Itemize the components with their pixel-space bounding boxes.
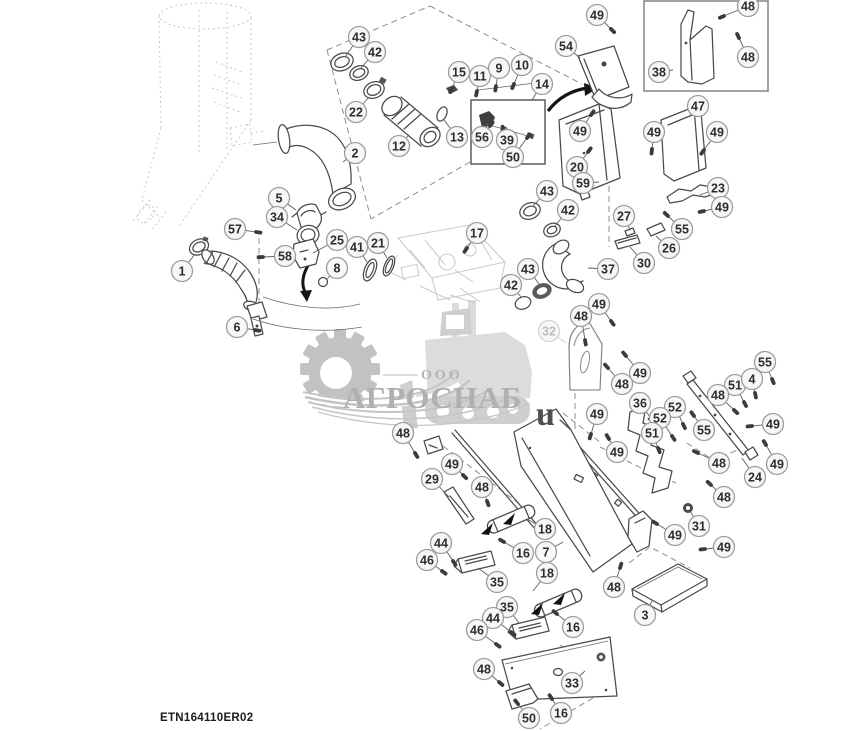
callout-13[interactable]: 13 — [444, 120, 468, 148]
callout-number: 39 — [500, 133, 514, 147]
callout-number: 48 — [712, 456, 726, 470]
bracket-above-tray — [628, 511, 652, 552]
callout-24[interactable]: 24 — [742, 458, 766, 488]
callout-number: 6 — [234, 320, 241, 334]
fastener-icon — [496, 644, 500, 647]
callout-32[interactable]: 32 — [539, 321, 567, 344]
callout-49[interactable]: 49 — [701, 537, 735, 558]
callout-number: 49 — [668, 528, 682, 542]
fastener-icon — [511, 632, 515, 635]
callout-number: 31 — [692, 519, 706, 533]
callout-number: 2 — [352, 146, 359, 160]
callout-48[interactable]: 48 — [708, 482, 735, 508]
callout-48[interactable]: 48 — [720, 0, 759, 18]
fastener-icon — [607, 435, 609, 439]
callout-1[interactable]: 1 — [172, 254, 196, 282]
callout-number: 21 — [371, 236, 385, 250]
callout-14[interactable]: 14 — [532, 74, 553, 101]
callout-number: 27 — [617, 209, 631, 223]
callout-35[interactable]: 35 — [478, 568, 508, 593]
fastener-icon — [585, 340, 586, 344]
callout-number: 10 — [515, 58, 529, 72]
part-43-clamp-ring-2 — [517, 200, 542, 223]
callout-55[interactable]: 55 — [691, 412, 714, 440]
fastener-icon — [550, 695, 552, 699]
fastener-icon — [744, 402, 746, 406]
watermark-company-name: АГРОСНАБ — [343, 380, 522, 415]
callout-number: 49 — [590, 8, 604, 22]
fastener-icon — [611, 29, 614, 32]
part-54-deflector — [578, 46, 632, 108]
fastener-icon — [487, 501, 489, 505]
callout-number: 48 — [615, 377, 629, 391]
fastener-icon — [694, 451, 698, 453]
part-13-clamp-small — [435, 105, 449, 122]
callout-number: 49 — [717, 540, 731, 554]
callout-number: 29 — [425, 472, 439, 486]
fastener-icon — [620, 564, 621, 568]
callout-number: 23 — [711, 181, 725, 195]
callout-number: 34 — [270, 210, 284, 224]
fastener-icon — [691, 412, 694, 416]
callout-number: 48 — [475, 480, 489, 494]
callout-41[interactable]: 41 — [347, 237, 368, 263]
callout-49[interactable]: 49 — [748, 414, 784, 435]
fastener-icon — [415, 453, 417, 457]
callout-number: 51 — [728, 378, 742, 392]
callout-number: 1 — [179, 264, 186, 278]
callout-49[interactable]: 49 — [587, 5, 615, 33]
part-31-grommet — [683, 503, 693, 513]
callout-number: 48 — [477, 662, 491, 676]
callout-number: 58 — [278, 249, 292, 263]
fastener-icon — [591, 111, 594, 115]
callout-number: 50 — [522, 711, 536, 725]
fastener-icon — [442, 571, 446, 574]
part-29-strip — [444, 487, 474, 524]
fastener-icon — [700, 211, 704, 212]
fastener-icon — [588, 148, 591, 152]
callout-number: 16 — [566, 620, 580, 634]
callout-number: 55 — [675, 222, 689, 236]
part-18-heat-shield-upper — [481, 503, 537, 535]
callout-number: 54 — [559, 39, 573, 53]
fastener-icon — [512, 84, 514, 88]
callout-number: 18 — [538, 522, 552, 536]
part-26-plate — [647, 223, 665, 236]
callout-number: 48 — [741, 0, 755, 13]
callout-5[interactable]: 5 — [269, 188, 297, 211]
callout-47[interactable]: 47 — [688, 96, 709, 118]
fastener-icon — [720, 16, 724, 18]
callout-57[interactable]: 57 — [225, 219, 261, 240]
callout-58[interactable]: 58 — [259, 246, 296, 267]
callout-42[interactable]: 42 — [555, 200, 579, 227]
callout-number: 49 — [590, 407, 604, 421]
fastener-icon — [450, 88, 452, 92]
callout-16[interactable]: 16 — [550, 695, 572, 723]
callout-21[interactable]: 21 — [368, 233, 389, 259]
callout-15[interactable]: 15 — [449, 62, 470, 93]
callout-number: 30 — [637, 256, 651, 270]
fastener-icon — [554, 611, 557, 614]
callout-number: 49 — [633, 366, 647, 380]
callout-37[interactable]: 37 — [588, 259, 619, 280]
callout-number: 44 — [434, 536, 448, 550]
callout-number: 49 — [766, 417, 780, 431]
part-8-o-ring — [319, 278, 328, 287]
callout-49[interactable]: 49 — [764, 441, 788, 474]
fastener-icon — [453, 561, 455, 565]
fastener-icon — [772, 379, 774, 383]
callout-38[interactable]: 38 — [649, 62, 674, 83]
drawing-code: ETN164110ER02 — [160, 712, 253, 724]
fastener-icon — [463, 475, 466, 478]
callout-3[interactable]: 3 — [635, 601, 656, 626]
callout-number: 50 — [506, 150, 520, 164]
callout-number: 57 — [228, 222, 242, 236]
callout-number: 55 — [697, 423, 711, 437]
callout-number: 38 — [652, 65, 666, 79]
callout-number: 43 — [352, 30, 366, 44]
fastener-icon — [672, 436, 674, 440]
callout-number: 56 — [475, 130, 489, 144]
callout-18[interactable]: 18 — [527, 519, 556, 540]
callout-49[interactable]: 49 — [653, 522, 685, 546]
fastener-icon — [651, 149, 652, 153]
fastener-icon — [527, 134, 530, 138]
fastener-icon — [255, 330, 259, 331]
callout-34[interactable]: 34 — [267, 207, 298, 231]
exhaust-parts-diagram: ООО АГРОСНАБ — [0, 0, 841, 731]
callout-48[interactable]: 48 — [694, 451, 730, 473]
callout-number: 13 — [450, 130, 464, 144]
callout-49[interactable]: 49 — [607, 435, 628, 462]
fastener-icon — [623, 353, 626, 356]
callout-27[interactable]: 27 — [614, 206, 635, 231]
callout-number: 49 — [445, 457, 459, 471]
fastener-icon — [734, 410, 737, 413]
callout-49[interactable]: 49 — [587, 404, 608, 439]
callout-54[interactable]: 54 — [556, 36, 581, 59]
callout-number: 15 — [452, 65, 466, 79]
part-30-strip — [615, 235, 640, 249]
callout-16[interactable]: 16 — [554, 611, 584, 637]
callout-number: 11 — [473, 69, 486, 83]
part-32-panel — [569, 322, 602, 390]
part-42-gasket-ring-3 — [513, 294, 532, 311]
small-mount-bracket — [424, 436, 443, 454]
part-12-pipe-stub — [378, 92, 444, 150]
callout-number: 49 — [647, 125, 661, 139]
fastener-icon — [665, 213, 668, 216]
callout-number: 46 — [470, 623, 484, 637]
callout-number: 22 — [349, 105, 363, 119]
callout-number: 12 — [392, 139, 406, 153]
callout-number: 49 — [770, 457, 784, 471]
fastener-icon — [605, 365, 608, 368]
callout-number: 59 — [576, 176, 590, 190]
callout-number: 49 — [592, 297, 606, 311]
callout-number: 5 — [276, 191, 283, 205]
callout-number: 49 — [610, 445, 624, 459]
part-42-gasket-ring-2 — [542, 221, 563, 239]
callout-number: 47 — [691, 99, 705, 113]
callout-30[interactable]: 30 — [630, 247, 655, 274]
part-22-clamp — [361, 77, 386, 102]
callout-29[interactable]: 29 — [422, 469, 450, 498]
part-41-v-clamp — [361, 257, 380, 282]
callout-number: 43 — [521, 262, 535, 276]
callout-number: 36 — [633, 396, 647, 410]
muffler-ghost-sketch — [132, 3, 277, 231]
watermark-letter-u: u — [536, 396, 555, 433]
callout-48[interactable]: 48 — [737, 34, 758, 68]
fastener-icon — [515, 700, 518, 704]
callout-number: 48 — [396, 426, 410, 440]
callout-number: 16 — [516, 546, 530, 560]
callout-number: 48 — [574, 309, 588, 323]
callout-10[interactable]: 10 — [512, 55, 533, 89]
callout-48[interactable]: 48 — [474, 659, 503, 685]
callout-number: 44 — [486, 611, 500, 625]
callout-number: 48 — [607, 580, 621, 594]
callout-56[interactable]: 56 — [472, 122, 493, 147]
callout-number: 32 — [542, 324, 556, 338]
callout-number: 48 — [717, 490, 731, 504]
callout-26[interactable]: 26 — [656, 236, 680, 259]
fastener-icon — [490, 122, 493, 126]
callout-number: 41 — [350, 240, 364, 254]
callout-number: 9 — [496, 61, 503, 75]
fastener-icon — [465, 248, 467, 252]
callout-number: 4 — [749, 372, 756, 386]
fastener-icon — [737, 34, 739, 38]
part-35-bracket-upper — [454, 551, 495, 573]
callout-number: 49 — [573, 124, 587, 138]
callout-number: 3 — [642, 608, 649, 622]
callout-22[interactable]: 22 — [346, 97, 370, 123]
callout-number: 33 — [565, 676, 579, 690]
callout-number: 49 — [715, 200, 729, 214]
callout-number: 18 — [540, 566, 554, 580]
callout-number: 49 — [710, 125, 724, 139]
callout-number: 42 — [561, 203, 575, 217]
callout-4[interactable]: 4 — [742, 369, 763, 398]
callout-number: 51 — [645, 426, 659, 440]
callout-42[interactable]: 42 — [501, 275, 522, 298]
callout-12[interactable]: 12 — [389, 135, 410, 157]
callout-number: 46 — [420, 553, 434, 567]
callout-49[interactable]: 49 — [589, 294, 614, 325]
fastener-icon — [476, 91, 477, 95]
fastener-icon — [256, 232, 260, 233]
callout-31[interactable]: 31 — [689, 511, 710, 537]
callout-48[interactable]: 48 — [604, 564, 625, 598]
fastener-icon — [590, 434, 591, 438]
fastener-icon — [683, 424, 685, 428]
callout-number: 55 — [758, 355, 772, 369]
callout-55[interactable]: 55 — [665, 213, 693, 240]
fastener-icon — [701, 150, 704, 154]
callout-number: 8 — [334, 261, 341, 275]
callout-number: 48 — [741, 50, 755, 64]
callout-number: 17 — [470, 226, 484, 240]
callout-number: 52 — [668, 400, 682, 414]
callout-48[interactable]: 48 — [472, 477, 493, 506]
callout-16[interactable]: 16 — [500, 540, 533, 564]
fastener-icon — [658, 448, 660, 452]
callout-number: 24 — [748, 470, 762, 484]
callout-49[interactable]: 49 — [700, 197, 733, 218]
callout-number: 42 — [504, 278, 518, 292]
callout-number: 16 — [554, 706, 568, 720]
watermark: ООО АГРОСНАБ — [300, 300, 532, 430]
fastener-icon — [500, 540, 504, 542]
fastener-icon — [708, 482, 711, 485]
callout-number: 14 — [535, 77, 549, 91]
part-25-bracket — [293, 239, 319, 268]
fastener-icon — [653, 522, 657, 524]
callout-number: 48 — [711, 388, 725, 402]
callout-49[interactable]: 49 — [644, 122, 665, 154]
callout-8[interactable]: 8 — [327, 258, 348, 280]
callout-7[interactable]: 7 — [536, 542, 564, 563]
callout-number: 26 — [662, 241, 676, 255]
callout-43[interactable]: 43 — [533, 181, 558, 207]
callout-number: 35 — [490, 575, 504, 589]
callout-number: 43 — [540, 184, 554, 198]
fastener-icon — [495, 86, 496, 90]
callout-48[interactable]: 48 — [605, 365, 632, 395]
callout-49[interactable]: 49 — [442, 454, 467, 479]
fastener-icon — [755, 393, 756, 397]
callout-49[interactable]: 49 — [701, 122, 727, 154]
callout-number: 7 — [543, 545, 550, 559]
fastener-icon — [764, 441, 766, 445]
callout-9[interactable]: 9 — [489, 58, 510, 91]
fastener-icon — [499, 682, 502, 685]
callout-number: 42 — [368, 45, 382, 59]
fastener-icon — [611, 321, 614, 325]
callout-number: 37 — [601, 262, 615, 276]
callout-18[interactable]: 18 — [533, 563, 558, 592]
part-47-shield-panel — [661, 107, 706, 181]
callout-11[interactable]: 11 — [470, 66, 491, 96]
callout-number: 25 — [330, 233, 344, 247]
